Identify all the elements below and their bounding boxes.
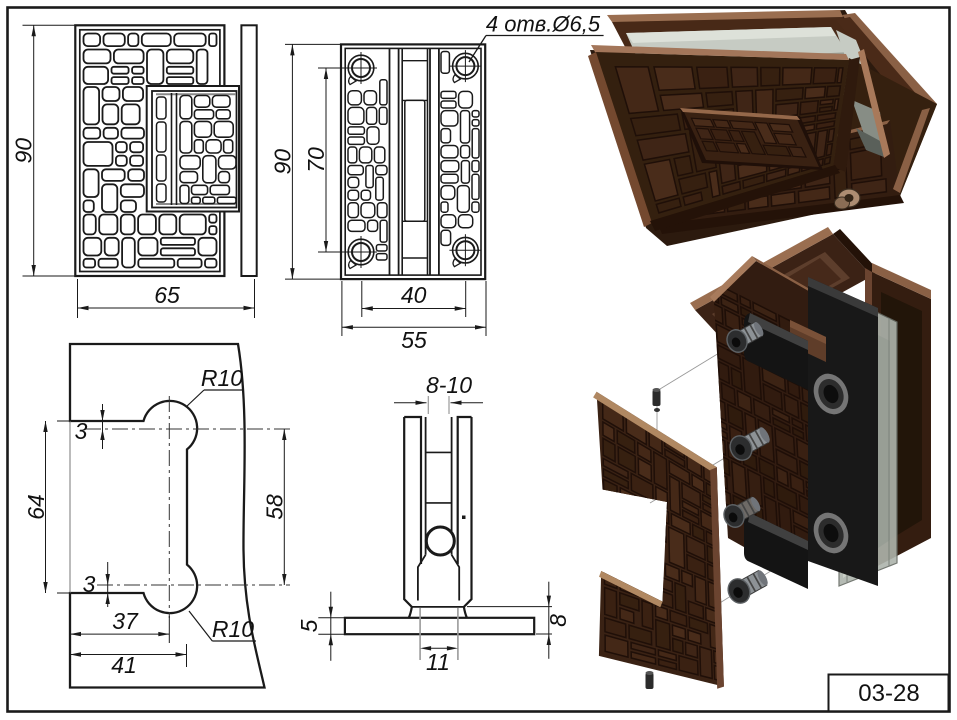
svg-text:64: 64: [23, 494, 49, 520]
svg-text:03-28: 03-28: [858, 680, 919, 707]
svg-text:58: 58: [262, 494, 288, 520]
svg-text:41: 41: [111, 652, 137, 678]
svg-text:3: 3: [75, 418, 88, 444]
svg-text:40: 40: [401, 282, 427, 308]
svg-text:8-10: 8-10: [426, 372, 472, 398]
svg-text:65: 65: [154, 282, 180, 308]
svg-text:R10: R10: [212, 616, 254, 642]
svg-text:3: 3: [83, 571, 96, 597]
svg-text:R10: R10: [201, 365, 243, 391]
svg-text:90: 90: [11, 138, 37, 164]
svg-text:90: 90: [270, 149, 296, 175]
svg-text:8: 8: [545, 614, 571, 627]
svg-text:4 отв.Ø6,5: 4 отв.Ø6,5: [486, 11, 601, 36]
svg-text:70: 70: [303, 147, 329, 173]
svg-text:5: 5: [296, 619, 322, 632]
svg-text:37: 37: [112, 608, 139, 634]
svg-text:11: 11: [426, 649, 450, 675]
svg-text:55: 55: [401, 327, 427, 353]
